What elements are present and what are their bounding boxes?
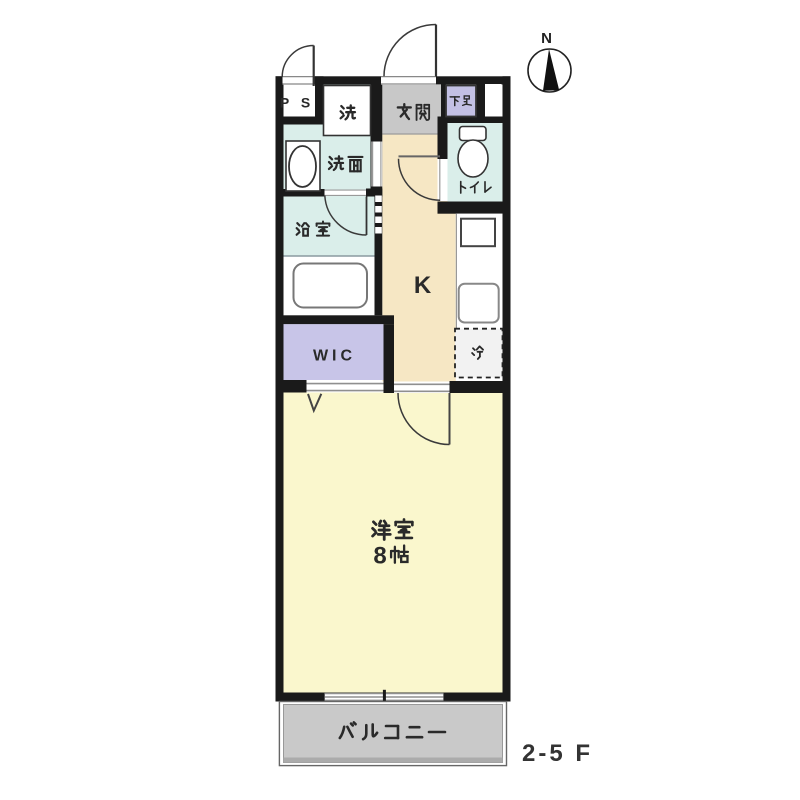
svg-text:P S: P S	[280, 95, 314, 111]
svg-text:8: 8	[373, 543, 386, 570]
svg-text:N: N	[541, 30, 552, 47]
svg-text:2-5 F: 2-5 F	[522, 740, 593, 767]
svg-text:WIC: WIC	[313, 348, 356, 365]
svg-text:K: K	[414, 272, 432, 299]
